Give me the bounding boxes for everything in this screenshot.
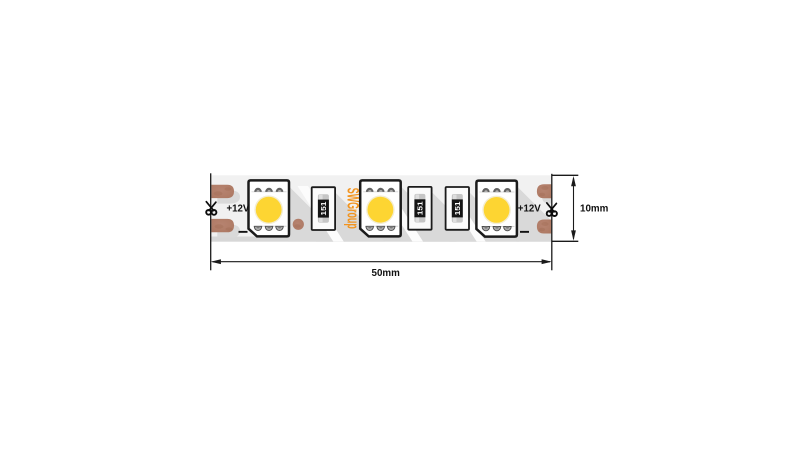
svg-text:+12V: +12V — [227, 203, 250, 214]
svg-text:+12V: +12V — [518, 203, 541, 214]
svg-text:10mm: 10mm — [580, 204, 609, 215]
svg-text:SWGroup: SWGroup — [344, 188, 362, 229]
svg-text:50mm: 50mm — [372, 268, 401, 279]
